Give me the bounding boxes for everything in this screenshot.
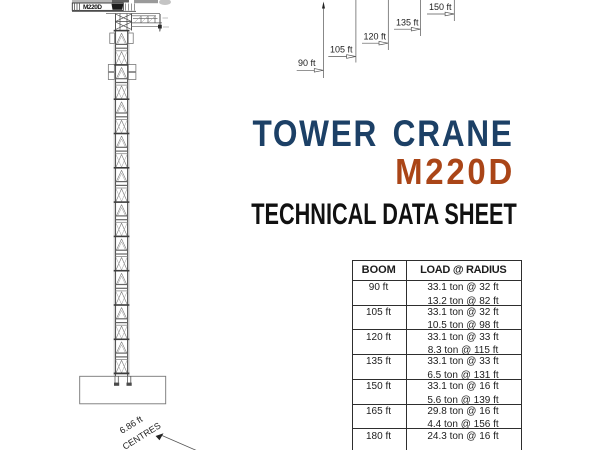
svg-text:M220D: M220D (83, 4, 102, 11)
svg-text:120 ft: 120 ft (364, 31, 387, 41)
svg-text:150 ft: 150 ft (429, 2, 452, 12)
svg-text:135 ft: 135 ft (396, 17, 419, 27)
svg-text:90 ft: 90 ft (298, 58, 316, 68)
svg-text:105 ft: 105 ft (330, 45, 353, 55)
